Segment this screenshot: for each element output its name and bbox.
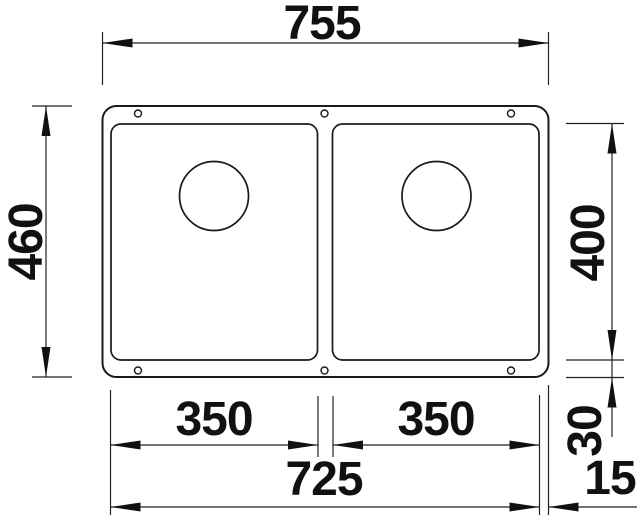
right-drain-circle (402, 162, 471, 231)
arrowhead-left (103, 39, 133, 48)
mounting-hole-bottom-left (135, 367, 142, 374)
arrowhead-right (510, 441, 540, 450)
dim-overall-width: 755 (103, 0, 549, 85)
arrowhead-bottom (608, 330, 617, 360)
dim-label-bowl-span-width: 725 (285, 453, 362, 506)
sink-body (103, 106, 549, 377)
mounting-hole-bottom-right (508, 367, 515, 374)
dim-label-left-bowl-width: 350 (175, 393, 252, 446)
arrowhead-top (42, 106, 51, 136)
dim-label-right-bowl-width: 350 (397, 393, 474, 446)
left-drain-circle (180, 162, 249, 231)
arrowhead-left (111, 441, 141, 450)
dim-bowl-span-width: 725 (111, 453, 540, 512)
dim-label-overall-width: 755 (283, 0, 360, 50)
left-bowl-outline (111, 124, 318, 360)
arrowhead-left (111, 503, 141, 512)
mounting-hole-top-center (321, 110, 328, 117)
sink-outer-outline (103, 106, 549, 377)
mounting-hole-top-right (508, 110, 515, 117)
arrowhead-left (549, 503, 579, 512)
drawing-svg: 755 460 400 30 (0, 0, 639, 520)
arrowhead-left (333, 441, 363, 450)
mounting-hole-top-left (135, 110, 142, 117)
dim-overall-depth: 460 (0, 106, 72, 377)
sink-dimension-drawing: 755 460 400 30 (0, 0, 639, 520)
dim-label-side-rim: 15 (584, 452, 636, 505)
arrowhead-top (608, 124, 617, 154)
dim-label-bowl-depth: 400 (562, 204, 615, 281)
dim-bottom-rim: 30 (559, 360, 624, 457)
dim-label-bottom-rim: 30 (559, 405, 612, 456)
arrowhead-bottom (42, 347, 51, 377)
arrowhead-up (608, 378, 617, 408)
dim-left-bowl-width: 350 (111, 393, 319, 450)
dim-right-bowl-width: 350 (333, 393, 540, 450)
dim-bowl-depth: 400 (562, 124, 624, 361)
arrowhead-right (288, 441, 318, 450)
right-bowl-outline (333, 124, 540, 360)
arrowhead-right (510, 503, 540, 512)
dim-side-rim: 15 (549, 452, 638, 512)
mounting-hole-bottom-center (321, 367, 328, 374)
arrowhead-right (519, 39, 549, 48)
dim-label-overall-depth: 460 (0, 203, 53, 280)
